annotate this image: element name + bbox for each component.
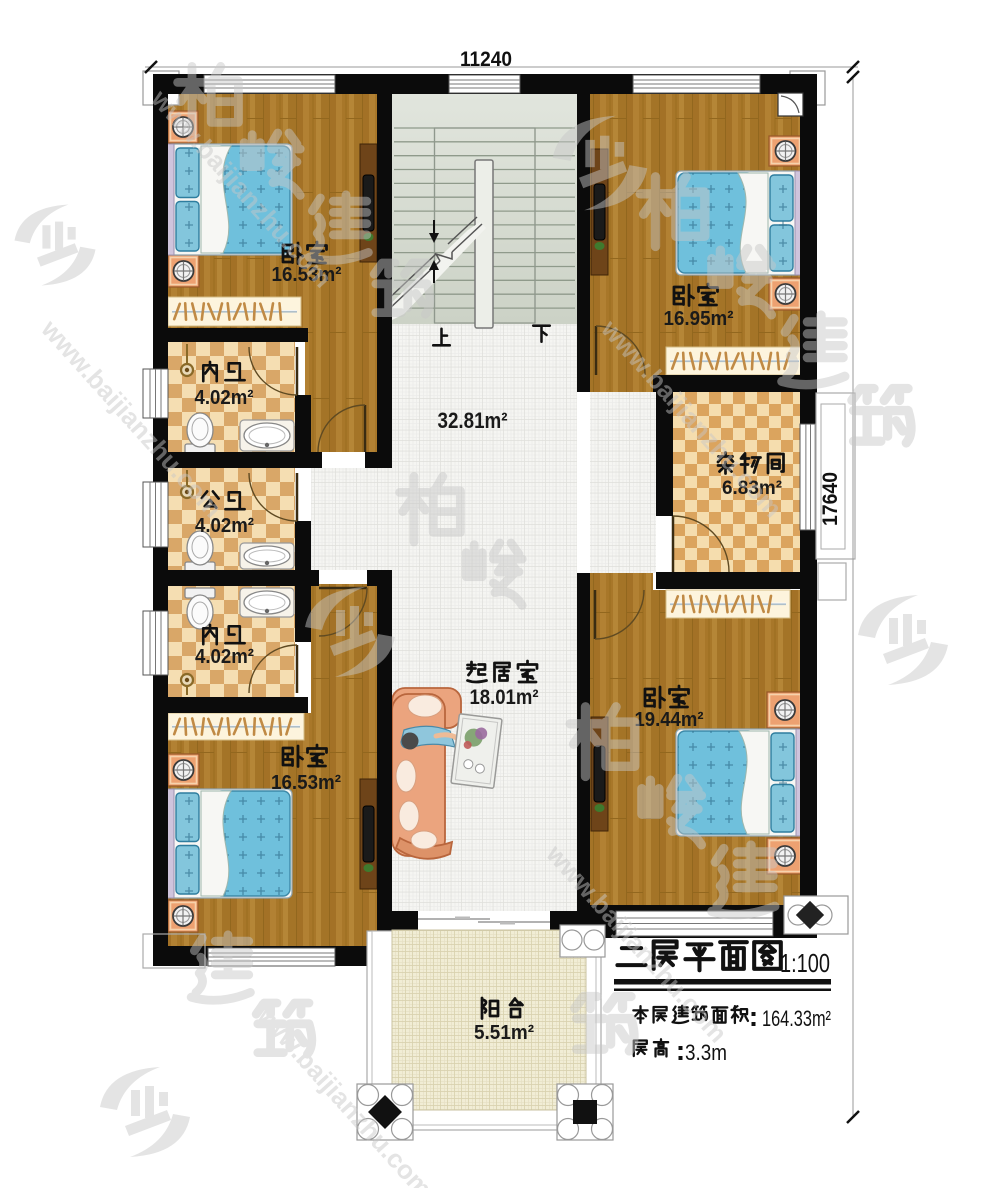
svg-text:5.51m²: 5.51m²: [474, 1022, 534, 1044]
svg-text:17640: 17640: [819, 472, 842, 526]
svg-text:18.01m²: 18.01m²: [470, 686, 539, 709]
svg-text:164.33m²: 164.33m²: [762, 1006, 831, 1031]
svg-text:3.3m: 3.3m: [685, 1040, 727, 1065]
svg-text:11240: 11240: [460, 48, 512, 71]
svg-text:4.02m²: 4.02m²: [195, 646, 254, 668]
svg-text:1:100: 1:100: [780, 948, 830, 978]
svg-text:19.44m²: 19.44m²: [635, 709, 704, 731]
svg-text:16.53m²: 16.53m²: [271, 772, 341, 794]
svg-text:16.95m²: 16.95m²: [664, 308, 734, 330]
svg-text:4.02m²: 4.02m²: [195, 387, 254, 409]
svg-text:32.81m²: 32.81m²: [438, 408, 508, 433]
